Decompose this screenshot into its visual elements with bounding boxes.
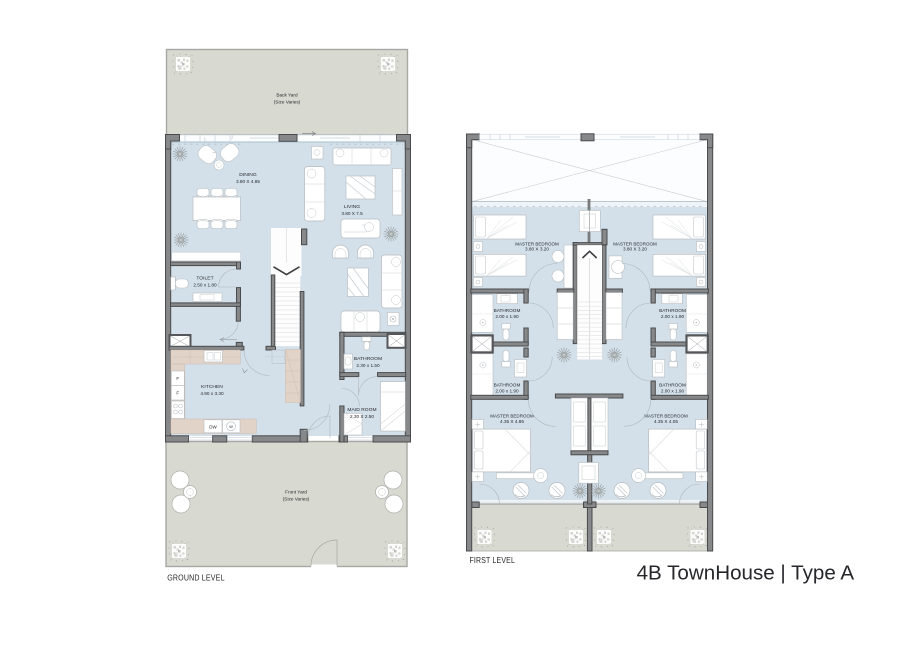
svg-text:FIRST LEVEL: FIRST LEVEL — [470, 556, 516, 565]
svg-text:(Size Varies): (Size Varies) — [283, 497, 310, 502]
svg-text:BATHROOM: BATHROOM — [659, 383, 686, 388]
svg-text:2.00 x 1.90: 2.00 x 1.90 — [661, 388, 685, 393]
svg-text:2.30 X 2.50: 2.30 X 2.50 — [350, 414, 374, 419]
svg-text:MAID ROOM: MAID ROOM — [347, 407, 376, 413]
svg-text:BATHROOM: BATHROOM — [494, 383, 521, 388]
svg-text:3.80 X 3.20: 3.80 X 3.20 — [623, 246, 647, 251]
svg-text:W: W — [229, 425, 233, 429]
svg-text:3.80 X 4.85: 3.80 X 4.85 — [236, 179, 260, 184]
svg-text:4.90 x 3.30: 4.90 x 3.30 — [200, 391, 224, 396]
svg-text:4.35 X 4.05: 4.35 X 4.05 — [654, 419, 678, 424]
svg-text:KITCHEN: KITCHEN — [201, 384, 223, 390]
svg-text:2.00 x 1.90: 2.00 x 1.90 — [495, 388, 519, 393]
svg-text:2.30 x 1.50: 2.30 x 1.50 — [356, 363, 380, 368]
svg-text:LIVING: LIVING — [344, 204, 360, 210]
svg-text:3.80 X 3.20: 3.80 X 3.20 — [525, 246, 549, 251]
svg-text:4B TownHouse | Type A: 4B TownHouse | Type A — [637, 561, 855, 584]
svg-text:GROUND LEVEL: GROUND LEVEL — [167, 573, 225, 582]
svg-text:(Size Varies): (Size Varies) — [274, 99, 301, 104]
svg-text:BATHROOM: BATHROOM — [494, 308, 521, 313]
svg-text:4.35 X 4.85: 4.35 X 4.85 — [500, 419, 524, 424]
svg-text:DINING: DINING — [239, 172, 257, 178]
svg-text:Front Yard: Front Yard — [285, 490, 307, 495]
svg-text:2.00 x 1.90: 2.00 x 1.90 — [495, 314, 519, 319]
svg-text:F: F — [176, 391, 179, 396]
svg-text:2.50 x 1.80: 2.50 x 1.80 — [193, 283, 217, 288]
svg-text:TOILET: TOILET — [196, 276, 213, 282]
svg-text:Back Yard: Back Yard — [276, 92, 298, 97]
svg-text:3.80 X 7.5: 3.80 X 7.5 — [341, 211, 363, 216]
svg-text:BATHROOM: BATHROOM — [659, 308, 686, 313]
svg-text:DW: DW — [209, 425, 217, 430]
svg-text:2.00 x 1.90: 2.00 x 1.90 — [661, 314, 685, 319]
svg-text:BATHROOM: BATHROOM — [354, 356, 382, 362]
svg-text:F: F — [176, 376, 179, 381]
